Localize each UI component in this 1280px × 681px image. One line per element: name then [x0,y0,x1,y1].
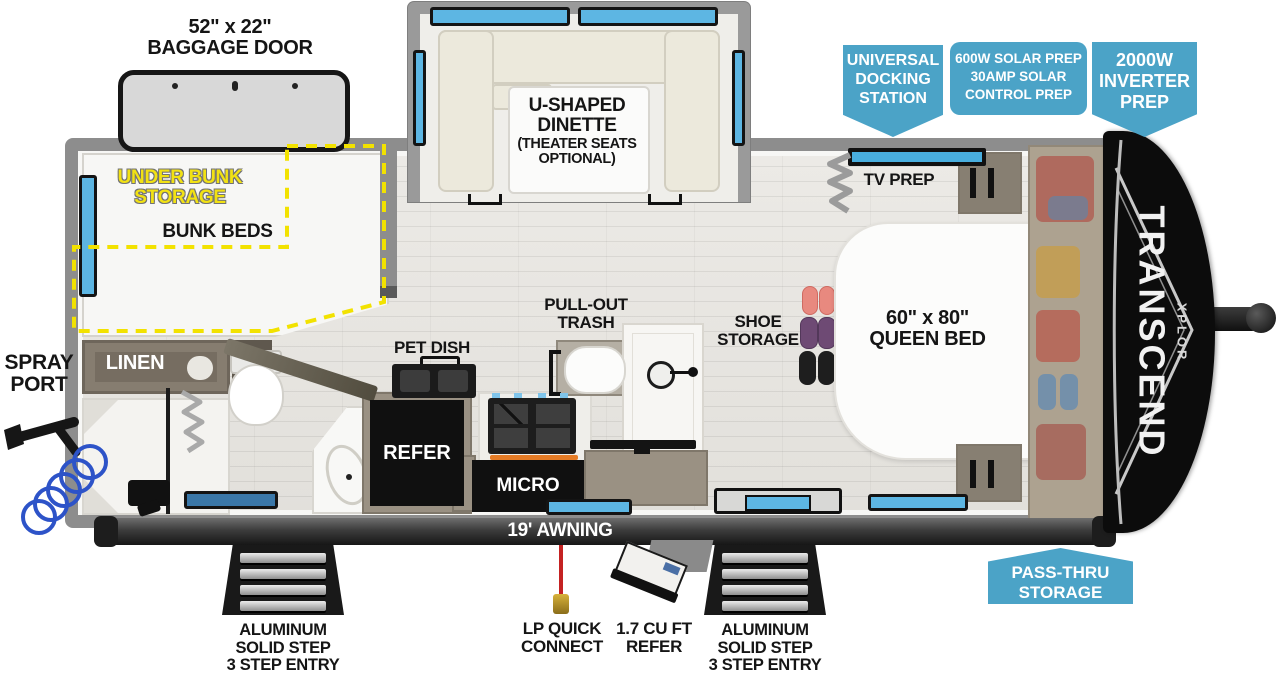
callout-solar-line2: 30AMP SOLAR [950,68,1087,86]
slide-stop-left [468,194,502,205]
linen-label: LINEN [92,353,178,374]
hose-coil [35,488,67,520]
step [722,585,807,595]
callout-solar-prep: 600W SOLAR PREP 30AMP SOLAR CONTROL PREP [950,42,1087,115]
dinette-window-left [413,50,426,146]
sink-basin [564,346,626,394]
pass-thru-overlay [1028,145,1105,520]
callout-inverter-prep: 2000W INVERTER PREP [1092,42,1197,137]
bedroom-window [868,494,968,511]
tv-cabinet [584,450,708,506]
flip-flops [819,286,835,315]
kitchen-window [546,499,632,515]
under-bunk-storage-label-line1: UNDER BUNK [110,168,250,188]
dinette-window-top-left [430,7,570,26]
steps-right-label-line3: 3 STEP ENTRY [698,657,832,675]
refrigerator: REFER [370,400,464,506]
callout-docking-line2: DOCKING [843,71,943,90]
pull-out-trash-label-line1: PULL-OUT [540,296,632,314]
callout-universal-docking-station: UNIVERSAL DOCKING STATION [843,45,943,137]
spray-port-label-line2: PORT [0,374,78,396]
awning-label: 19' AWNING [500,521,620,541]
tv-stand [634,448,650,454]
bath-window [184,491,278,509]
entry-door-window [745,495,811,511]
shoe-storage-label-line1: SHOE [712,313,804,331]
callout-docking-line1: UNIVERSAL [843,52,943,71]
faucet-base [647,361,675,389]
dinette-right-seat [664,30,720,192]
boots [818,351,835,385]
callout-passthru-line2: STORAGE [988,583,1133,603]
burner [494,428,528,448]
pull-out-trash-label-line2: TRASH [540,314,632,332]
micro-label: MICRO [496,475,559,496]
hitch-ball-cover [1246,303,1276,333]
shoe-storage-label-line2: STORAGE [712,331,804,349]
burner [494,404,528,424]
corner-brace [84,400,118,434]
callout-solar-line3: CONTROL PREP [950,86,1087,104]
hose-coil [23,501,55,533]
handle [970,168,976,198]
bunk-window [79,175,97,297]
awning-end-cap [94,516,118,547]
dinette-label-line3: (THEATER SEATS [508,137,646,153]
handle [970,460,976,488]
toilet-bowl [228,364,284,426]
fridge-detail [663,562,681,575]
step [722,601,807,611]
dinette-label-line1: U-SHAPED [508,96,646,116]
steps-right-label-line2: SOLID STEP [698,640,832,658]
baggage-door-label-line1: 52" x 22" [130,17,330,38]
stove-knob [560,393,568,398]
lp-label-line1: LP QUICK [512,620,612,638]
corner-brace [84,479,118,513]
cooktop [488,398,576,454]
callout-inverter-line1: 2000W [1092,50,1197,71]
burner [536,404,570,424]
step [722,553,807,563]
stove-knob [492,393,500,398]
lp-quick-connect-fitting [553,594,569,614]
entry-door [714,488,842,514]
fridge-base [610,568,679,603]
pet-dish-label: PET DISH [386,339,478,357]
baggage-door-screw [292,83,298,89]
refer-label: REFER [383,442,451,464]
sink-bracket [549,350,561,396]
pet-bowl [438,370,468,392]
baggage-door [118,70,350,152]
flip-flops [802,286,818,315]
baggage-door-label-line2: BAGGAGE DOOR [130,38,330,59]
handle [988,168,994,198]
callout-inverter-line3: PREP [1092,92,1197,113]
entry-steps-right [704,543,826,615]
ext-refer-label-line2: REFER [606,638,702,656]
lp-label-line2: CONNECT [512,638,612,656]
handle [988,460,994,488]
faucet-knob [688,367,698,377]
callout-docking-line3: STATION [843,90,943,109]
callout-inverter-line2: INVERTER [1092,71,1197,92]
step [722,569,807,579]
dinette-label-line2: DINETTE [508,116,646,136]
step [240,569,325,579]
burner [536,428,570,448]
queen-bed-label-line2: QUEEN BED [855,329,1000,350]
front-cap [1103,131,1215,533]
steps-left-label-line3: 3 STEP ENTRY [216,657,350,675]
dinette-label-line4: OPTIONAL) [508,152,646,168]
step [240,585,325,595]
pet-bowl [400,370,430,392]
baggage-door-screw [172,83,178,89]
wall-end-cap [380,286,397,298]
step [240,553,325,563]
callout-pass-thru-storage: PASS-THRU STORAGE [988,548,1133,604]
baggage-door-latch [232,81,238,91]
slide-stop-right [648,194,682,205]
queen-bed-label-line1: 60" x 80" [855,308,1000,329]
stove-knob [538,393,546,398]
under-bunk-storage-label-line2: STORAGE [110,188,250,208]
pet-dish [392,364,476,398]
boots [799,351,816,385]
stove-knob [514,393,522,398]
lp-line [559,545,563,597]
sprayer-nozzle [4,424,24,450]
steps-right-label-line1: ALUMINUM [698,622,832,640]
dinette-window-right [732,50,745,146]
spray-port-label-line1: SPRAY [0,352,78,374]
dinette-window-top-right [578,7,718,26]
steps-left-label-line1: ALUMINUM [216,622,350,640]
bunk-beds-label: BUNK BEDS [150,222,285,242]
callout-passthru-line1: PASS-THRU [988,563,1133,583]
step [240,601,325,611]
ext-refer-label-line1: 1.7 CU FT [606,620,702,638]
shower-drain [346,474,352,480]
tv-prep-label: TV PREP [858,171,940,189]
floorplan-canvas: U-SHAPED DINETTE (THEATER SEATS OPTIONAL… [0,0,1280,681]
dinette-left-seat [438,30,494,192]
callout-solar-line1: 600W SOLAR PREP [950,50,1087,68]
steps-left-label-line2: SOLID STEP [216,640,350,658]
bedroom-tv-prep-screen [848,148,986,166]
bunk-partition-wall [380,148,397,296]
entry-steps-left [222,543,344,615]
towel-roll [187,356,213,380]
